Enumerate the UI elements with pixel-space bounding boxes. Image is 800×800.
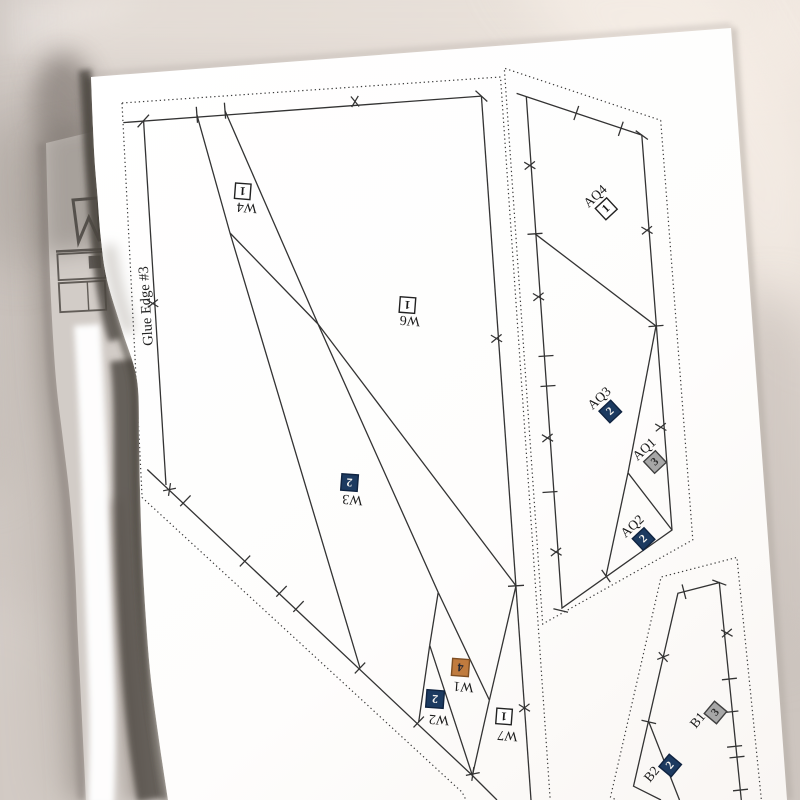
svg-text:W2: W2 bbox=[428, 711, 449, 727]
svg-text:1: 1 bbox=[500, 709, 507, 723]
svg-text:1: 1 bbox=[239, 184, 246, 198]
svg-text:W6: W6 bbox=[399, 312, 420, 328]
svg-text:4: 4 bbox=[457, 660, 464, 674]
svg-text:W3: W3 bbox=[342, 491, 363, 507]
svg-text:2: 2 bbox=[346, 475, 353, 489]
svg-text:1: 1 bbox=[404, 298, 411, 312]
svg-text:W7: W7 bbox=[497, 727, 518, 743]
svg-text:W1: W1 bbox=[453, 678, 474, 694]
svg-text:2: 2 bbox=[432, 692, 439, 706]
svg-text:W4: W4 bbox=[236, 199, 257, 215]
